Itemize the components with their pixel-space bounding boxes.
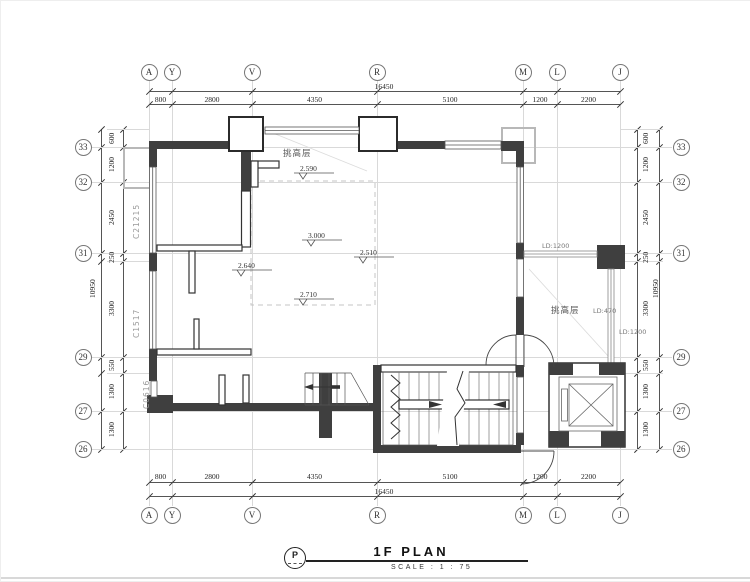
title-underline (306, 560, 528, 562)
window-tag-c1517: C1517 (132, 288, 141, 338)
sheet-edge-line (1, 577, 750, 579)
plan-title: 1F PLAN (331, 544, 491, 559)
window-tag-c0616: C0616 (142, 367, 151, 409)
level-bottom: 2.710 (300, 290, 317, 299)
level-center: 3.000 (308, 231, 325, 240)
void-label-top: 挑高层 (283, 147, 312, 159)
level-right: 2.510 (360, 248, 377, 257)
drawing-sheet: AAYYVVRRMMLLJJ80080028002800435043505100… (0, 0, 750, 582)
plan-scale: SCALE : 1 : 75 (391, 564, 472, 571)
window-tag-c21215: C21215 (132, 183, 141, 239)
railing-tag-right: LD:470 (593, 307, 616, 315)
railing-tag-top: LD:1200 (542, 242, 569, 250)
void-label-right: 挑高层 (551, 304, 580, 316)
plan-labels: 挑高层 挑高层 2.590 3.000 2.640 2.510 2.710 C2… (1, 1, 750, 581)
railing-tag-far-right: LD:1200 (619, 328, 646, 336)
plan-symbol: P (285, 550, 305, 560)
level-top: 2.590 (300, 164, 317, 173)
level-left: 2.640 (238, 261, 255, 270)
plan-symbol-circle: P (284, 547, 306, 569)
plan-symbol-divider (288, 563, 302, 564)
